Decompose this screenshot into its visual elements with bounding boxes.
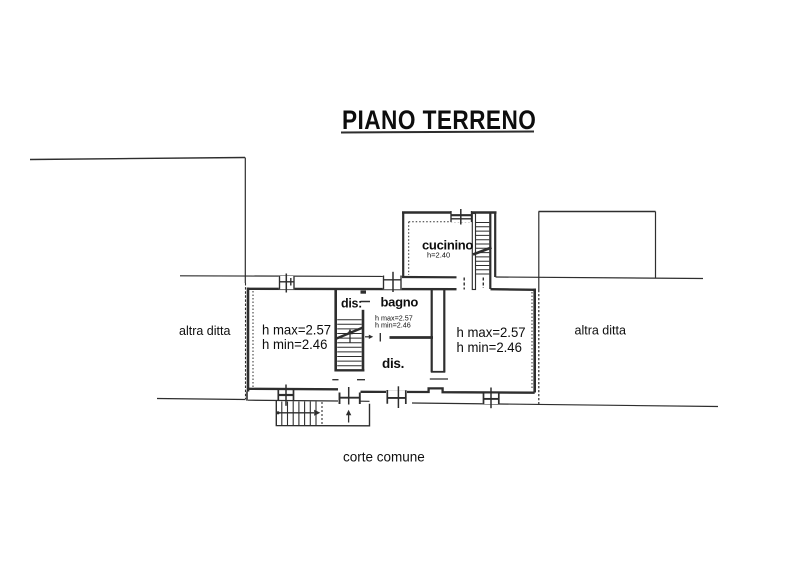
svg-text:h min=2.46: h min=2.46 bbox=[375, 321, 411, 330]
svg-text:h min=2.46: h min=2.46 bbox=[457, 340, 522, 355]
svg-text:h max=2.57: h max=2.57 bbox=[262, 322, 331, 337]
svg-text:h min=2.46: h min=2.46 bbox=[262, 337, 327, 352]
svg-text:bagno: bagno bbox=[381, 295, 419, 310]
svg-text:altra ditta: altra ditta bbox=[575, 324, 626, 338]
svg-text:h max=2.57: h max=2.57 bbox=[457, 325, 526, 340]
svg-text:h=2.40: h=2.40 bbox=[427, 251, 450, 260]
svg-text:altra ditta: altra ditta bbox=[179, 324, 230, 338]
svg-text:dis.: dis. bbox=[382, 356, 404, 371]
svg-text:corte comune: corte comune bbox=[343, 450, 425, 465]
svg-text:dis:: dis: bbox=[341, 297, 362, 311]
